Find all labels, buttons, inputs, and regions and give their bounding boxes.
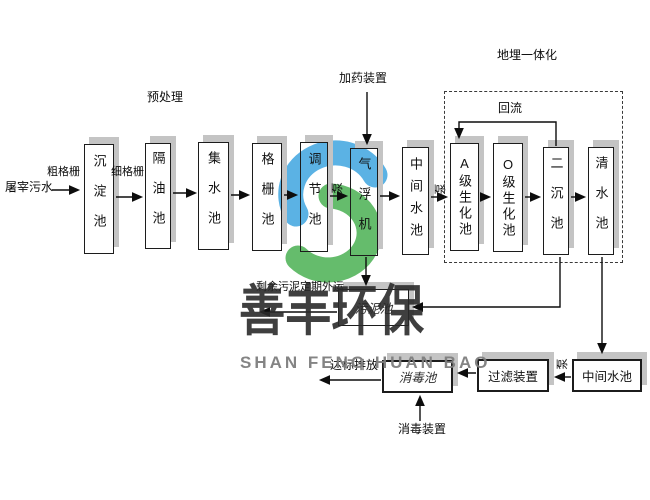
label-pump-1: 泵 <box>329 182 345 194</box>
label-pump-3: 泵 <box>554 358 570 370</box>
label-pump-2: 泵 <box>432 183 448 195</box>
tank-water-collection: 集水池 <box>198 142 229 250</box>
label-fine-screen: 细格栅 <box>111 166 144 179</box>
tank-sludge: 污泥池 <box>338 289 409 326</box>
tank-disinfection: 消毒池 <box>382 360 453 393</box>
tank-sedimentation: 沉淀池 <box>84 144 114 254</box>
tank-regulation: 调节池 <box>300 142 328 252</box>
label-source-water: 屠宰污水 <box>5 181 53 195</box>
label-excess-sludge-out: 剩余污泥定期外运 <box>256 281 344 294</box>
tank-oil-separation: 隔油池 <box>145 143 171 249</box>
label-discharge: 达标排放 <box>330 359 378 373</box>
tank-grid: 格栅池 <box>252 143 282 251</box>
device-filtration: 过滤装置 <box>477 359 549 392</box>
process-flow-diagram: 沉淀池 隔油池 集水池 格栅池 调节池 气浮机 中间水池 A级生化池 O级生化池… <box>0 0 650 500</box>
tank-clear-water: 清水池 <box>588 147 614 255</box>
label-coarse-screen: 粗格栅 <box>47 166 80 179</box>
tank-a-bio: A级生化池 <box>450 143 479 251</box>
tank-intermediate-1: 中间水池 <box>402 147 429 255</box>
tank-air-flotation: 气浮机 <box>350 148 378 256</box>
label-disinfection-device: 消毒装置 <box>398 423 446 437</box>
label-buried-integration: 地埋一体化 <box>497 49 557 63</box>
label-dosing-device: 加药装置 <box>339 72 387 86</box>
label-reflux: 回流 <box>498 102 522 116</box>
label-pretreatment: 预处理 <box>147 91 183 105</box>
diagram-layer: 沉淀池 隔油池 集水池 格栅池 调节池 气浮机 中间水池 A级生化池 O级生化池… <box>0 0 650 500</box>
tank-intermediate-2: 中间水池 <box>572 359 642 392</box>
tank-o-bio: O级生化池 <box>493 143 523 252</box>
tank-secondary-sedimentation: 二沉池 <box>543 147 569 255</box>
